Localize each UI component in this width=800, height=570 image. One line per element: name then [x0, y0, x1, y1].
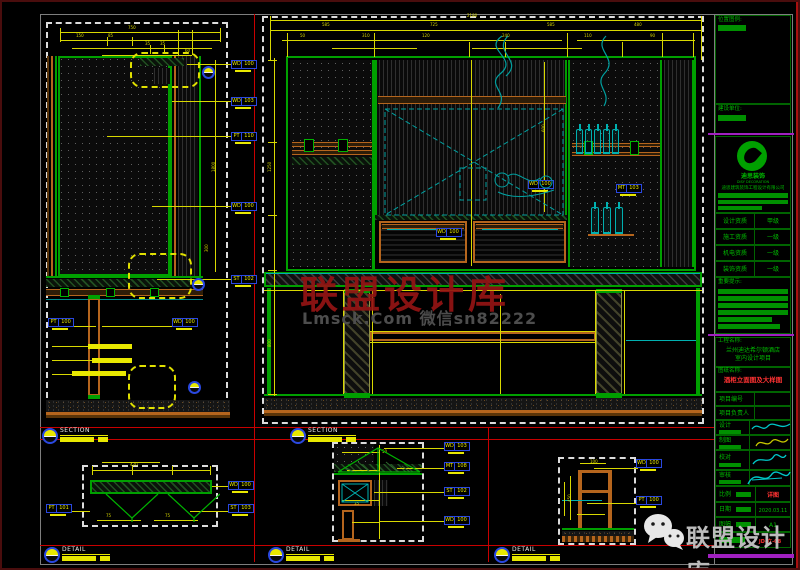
project-name-line1: 兰州迪达希尔顿酒店: [715, 347, 791, 354]
hatched-post: [596, 292, 622, 394]
material-tag-number: 101: [57, 505, 71, 512]
notice-bar: [718, 324, 780, 329]
watermark-center-url: Lmsck.Com 微信sn82222: [302, 305, 537, 329]
material-tag: WD100: [636, 459, 662, 468]
material-tag-number: 100: [455, 517, 469, 524]
dimension-line: [274, 58, 275, 396]
company-name: 迪思建筑装饰工程设计有限公司: [715, 186, 791, 191]
dimension-line: [107, 37, 108, 46]
notice-bar: [718, 289, 788, 294]
drawing-name-label: 图纸名称:: [718, 368, 742, 374]
wood-line: [51, 56, 53, 276]
dimension-line: [268, 142, 277, 143]
material-tag: WD100: [231, 202, 257, 211]
dimension-line: [52, 346, 88, 347]
dimension-line: [268, 270, 277, 271]
wood-line: [578, 490, 612, 493]
detail-bubble-icon: [202, 66, 215, 79]
dimension-text: 1250: [268, 162, 272, 172]
scale-bar: [736, 492, 751, 497]
title-bar: [100, 556, 110, 561]
material-tag-code: ST: [445, 488, 455, 495]
material-tag-number: 100: [647, 497, 661, 504]
cyan-line: [626, 340, 696, 341]
approve-bar: [719, 480, 741, 484]
purple-divider: [708, 334, 794, 336]
title-underline: [60, 435, 108, 436]
dimension-text: 2180: [467, 14, 477, 18]
view-title-marker: SECTION: [290, 428, 380, 443]
dimension-line: [132, 37, 133, 46]
note-bar: [72, 371, 126, 376]
dimension-text: 35: [145, 42, 150, 46]
green-line: [199, 56, 201, 276]
date-row: 日期 2020.03.11: [715, 502, 791, 517]
dimension-line: [268, 215, 277, 216]
material-tag: WD100: [436, 228, 462, 237]
material-tag-number: 102: [242, 276, 256, 283]
notice-bar: [718, 310, 788, 315]
dimension-line: [270, 30, 702, 31]
client-label: 建设单位:: [718, 106, 742, 112]
qual-value: 一级: [755, 250, 791, 257]
dimension-line: [92, 470, 210, 471]
dimension-line: [70, 511, 90, 512]
notice-bar: [718, 303, 788, 308]
qual-label: 设计资质: [716, 218, 754, 225]
wechat-icon: [642, 512, 686, 552]
green-line: [562, 528, 634, 530]
dimension-line: [172, 466, 173, 475]
truss-linework: [332, 444, 424, 476]
material-tag: PT101: [46, 504, 72, 513]
hatched-panel: [178, 56, 198, 276]
title-bar: [324, 556, 334, 561]
green-line: [88, 295, 100, 299]
material-tag-code: MT: [445, 463, 455, 470]
dimension-text: 585: [547, 23, 555, 27]
cad-sheet-screenshot: 7501508535356018003002180585725585480503…: [0, 0, 800, 570]
wine-bottle-icon: [603, 129, 610, 154]
material-tag-number: 100: [242, 61, 256, 68]
material-tag-code: PT: [49, 319, 59, 326]
dimension-line: [60, 40, 220, 41]
wood-frame: [578, 470, 582, 528]
material-tag-number: 100: [239, 482, 253, 489]
draft-label: 制图: [719, 438, 731, 444]
dimension-text: 35: [160, 42, 165, 46]
project-manager-label: 项目负责人: [719, 411, 749, 417]
project-name-line2: 室内设计项目: [715, 355, 791, 362]
green-line: [568, 60, 570, 267]
dimension-line: [374, 492, 445, 493]
client-bar: [718, 115, 746, 121]
dimension-line: [379, 521, 445, 522]
ribbon-ornament-icon: [470, 32, 532, 112]
brace-linework: [88, 492, 220, 522]
handle-block: [304, 139, 314, 152]
logo-leaf-icon: [741, 145, 762, 166]
dimension-line: [52, 374, 72, 375]
wood-frame: [370, 332, 596, 341]
logo-name-cn: 迪思装饰: [715, 173, 791, 180]
dimension-line: [268, 60, 277, 61]
dimension-text: 480: [634, 23, 642, 27]
title-bar: [98, 437, 108, 442]
handle-block: [60, 288, 69, 297]
dimension-line: [132, 466, 133, 475]
dimension-line: [352, 522, 380, 523]
dimension-line: [564, 482, 565, 516]
wine-bottle-icon: [615, 207, 623, 234]
dimension-line: [693, 33, 694, 57]
green-line: [55, 56, 57, 276]
material-tag-code: ST: [232, 276, 242, 283]
dimension-text: 725: [430, 23, 438, 27]
detail-bubble-icon: [192, 278, 205, 291]
dimension-line: [587, 503, 637, 504]
address-bar: [718, 200, 788, 204]
handle-block: [630, 141, 639, 155]
dimension-line: [701, 16, 702, 60]
wine-bottle-icon: [594, 129, 601, 154]
dimension-line: [72, 48, 212, 49]
callout-box: [128, 253, 192, 299]
material-tag: PT100: [48, 318, 74, 327]
dimension-line: [567, 33, 568, 57]
logo-name-en: DISY DECORATION: [715, 180, 791, 184]
green-line: [264, 394, 702, 396]
dimension-text: 150: [76, 34, 84, 38]
qualification-row: 装饰资质 一级: [715, 261, 791, 277]
wine-bottle-icon: [612, 129, 619, 154]
project-manager-row: 项目负责人: [715, 406, 791, 420]
wood-line: [588, 234, 634, 236]
cyan-line: [482, 229, 558, 230]
material-tag-number: 100: [447, 229, 461, 236]
material-tag-number: 103: [242, 98, 256, 105]
material-tag-number: 100: [183, 319, 197, 326]
hatched-panel: [664, 60, 692, 267]
design-bar: [719, 430, 741, 434]
teal-line: [46, 299, 203, 300]
view-title-label: DETAIL: [286, 547, 310, 553]
qual-label: 机电资质: [716, 250, 754, 257]
title-underline: [308, 435, 356, 436]
view-title-label: DETAIL: [62, 547, 86, 553]
wine-bottle-icon: [603, 207, 611, 234]
company-logo: [737, 141, 767, 171]
dimension-line: [287, 33, 288, 57]
scale-row: 比例 详图: [715, 486, 791, 502]
dimension-line: [107, 136, 231, 137]
notice-bar: [718, 317, 772, 322]
wood-grain-band: [562, 536, 634, 542]
location-bar: [718, 25, 746, 31]
material-tag-number: 108: [455, 463, 469, 470]
project-label: 工程名称:: [718, 338, 742, 344]
scale-value: 详图: [756, 492, 790, 499]
material-tag: ST102: [231, 275, 257, 284]
green-frame: [696, 288, 700, 394]
view-title-label: SECTION: [60, 428, 90, 434]
location-label: 位置图例:: [718, 17, 742, 23]
material-tag-number: 103: [455, 443, 469, 450]
callout-box: [130, 52, 200, 88]
dimension-line: [152, 206, 231, 207]
wood-line: [578, 470, 612, 473]
view-title-label: DETAIL: [512, 547, 536, 553]
green-line: [375, 60, 377, 217]
material-tag-code: WD: [445, 443, 455, 450]
dimension-line: [192, 30, 193, 55]
material-tag-number: 100: [242, 203, 256, 210]
hatched-panel: [374, 480, 388, 506]
qual-label: 施工资质: [716, 234, 754, 241]
handle-block: [106, 288, 115, 297]
purple-divider: [708, 133, 794, 135]
watermark-corner-text: 联盟设计库: [686, 518, 798, 570]
check-bar: [719, 463, 741, 467]
material-tag: WD103: [231, 97, 257, 106]
qualification-row: 机电资质 一级: [715, 245, 791, 261]
material-tag: PT100: [636, 496, 662, 505]
notice-label: 重要提示:: [718, 279, 742, 285]
material-tag-code: WD: [232, 61, 242, 68]
green-line: [88, 395, 100, 399]
material-tag-code: WD: [437, 229, 447, 236]
design-label: 设计: [719, 423, 731, 429]
green-line: [170, 56, 172, 276]
dimension-line: [577, 514, 605, 515]
qual-value: 一级: [755, 266, 791, 273]
address-bar: [718, 193, 788, 198]
material-tag-number: 103: [239, 505, 253, 512]
floor-hatch: [264, 398, 702, 410]
dimension-line: [624, 291, 625, 394]
title-bar: [60, 437, 94, 442]
material-tag-number: 110: [242, 133, 256, 140]
material-tag: MT108: [444, 462, 470, 471]
title-bar: [550, 556, 560, 561]
dimension-line: [74, 326, 96, 327]
material-tag-number: 100: [647, 460, 661, 467]
date-bar: [736, 507, 751, 512]
detail-bubble-icon: [42, 428, 58, 444]
material-tag-code: WD: [232, 203, 242, 210]
approve-label: 审核: [719, 473, 731, 479]
title-underline: [286, 554, 334, 555]
dimension-text: 300: [205, 244, 209, 252]
callout-box: [128, 365, 176, 409]
material-tag-code: PT: [232, 133, 242, 140]
dimension-line: [662, 33, 663, 57]
wine-bottle-icon: [591, 207, 599, 234]
qual-value: 一级: [755, 234, 791, 241]
title-bar: [62, 556, 96, 561]
wine-bottle-icon: [585, 129, 592, 154]
dimension-line: [594, 468, 638, 469]
decor-ornament-icon: [488, 162, 568, 202]
detail-bubble-icon: [290, 428, 306, 444]
qual-label: 装饰资质: [716, 266, 754, 273]
material-tag: WD100: [228, 481, 254, 490]
wood-line: [338, 539, 360, 542]
signature-draft: [752, 434, 790, 451]
material-tag-code: PT: [637, 497, 647, 504]
title-bar: [346, 437, 356, 442]
dimension-line: [210, 466, 211, 475]
material-tag-code: WD: [637, 460, 647, 467]
dimension-text: 90: [650, 34, 655, 38]
dimension-text: 1800: [212, 162, 216, 172]
material-tag: WD100: [444, 516, 470, 525]
title-bar: [512, 556, 546, 561]
title-underline: [512, 554, 560, 555]
dimension-text: 585: [322, 23, 330, 27]
detail-bubble-icon: [188, 381, 201, 394]
material-tag: WD100: [231, 60, 257, 69]
dimension-line: [374, 33, 375, 57]
dimension-line: [220, 28, 221, 42]
material-tag-code: WD: [232, 98, 242, 105]
dimension-text: 120: [422, 34, 430, 38]
material-tag-number: 103: [627, 185, 641, 192]
material-tag-code: WD: [229, 482, 239, 489]
material-tag-code: WD: [173, 319, 183, 326]
check-label: 校对: [719, 455, 731, 461]
detail-bubble-icon: [268, 547, 284, 563]
wood-line: [47, 56, 49, 276]
view-title-marker: DETAIL: [268, 547, 358, 562]
cell-divider: [754, 393, 755, 405]
wood-line: [264, 413, 702, 416]
address-bar: [718, 206, 762, 210]
view-title-marker: DETAIL: [494, 547, 584, 562]
dimension-line: [270, 20, 702, 21]
date-value: 2020.03.11: [756, 508, 790, 515]
draft-bar: [719, 445, 741, 449]
wine-bottle-icon: [576, 129, 583, 154]
dimension-line: [270, 16, 271, 60]
material-tag: PT110: [231, 132, 257, 141]
dimension-line: [102, 326, 172, 327]
view-title-marker: SECTION: [42, 428, 132, 443]
title-bar: [286, 556, 320, 561]
material-tag: MT103: [616, 184, 642, 193]
qualification-row: 施工资质 一级: [715, 229, 791, 245]
dimension-line: [370, 331, 596, 332]
drawing-name-value: 酒柜立面图及大样图: [715, 377, 791, 384]
title-underline: [62, 554, 110, 555]
note-bar: [88, 344, 132, 349]
view-title-label: SECTION: [308, 428, 338, 434]
dimension-text: 450: [568, 494, 572, 502]
wood-frame: [342, 510, 354, 540]
dimension-line: [370, 342, 596, 343]
hatched-band: [292, 157, 372, 165]
cell-divider: [754, 407, 755, 419]
detail-bubble-icon: [494, 547, 510, 563]
cell-divider: [749, 436, 750, 449]
wood-frame: [608, 470, 612, 528]
qual-value: 甲级: [755, 218, 791, 225]
project-no-row: 项目编号: [715, 392, 791, 406]
title-bar: [308, 437, 342, 442]
material-tag: ST102: [444, 487, 470, 496]
dimension-line: [60, 32, 220, 33]
dimension-line: [60, 28, 61, 42]
material-tag-number: 102: [455, 488, 469, 495]
dimension-text: 420: [130, 463, 138, 467]
material-tag-code: ST: [229, 505, 239, 512]
date-label: 日期: [719, 507, 731, 513]
qualification-row: 设计资质 甲级: [715, 213, 791, 229]
material-tag-code: WD: [445, 517, 455, 524]
material-tag-code: PT: [47, 505, 57, 512]
wood-line: [46, 415, 230, 418]
notice-bar: [718, 296, 788, 301]
dimension-text: 50: [300, 34, 305, 38]
dimension-text: 750: [128, 26, 136, 30]
handle-block: [338, 139, 348, 152]
note-bar: [92, 358, 132, 363]
dimension-line: [92, 466, 93, 475]
material-tag: ST103: [228, 504, 254, 513]
project-no-label: 项目编号: [719, 397, 743, 403]
scale-label: 比例: [719, 492, 731, 498]
green-frame: [58, 56, 170, 276]
dimension-line: [172, 101, 231, 102]
blocking-x-symbol: [341, 483, 369, 503]
dimension-line: [52, 360, 92, 361]
ribbon-ornament-icon: [582, 32, 628, 112]
dimension-line: [268, 394, 277, 395]
view-title-marker: DETAIL: [44, 547, 134, 562]
wood-line: [174, 56, 176, 276]
material-tag-number: 100: [59, 319, 73, 326]
dimension-text: 310: [362, 34, 370, 38]
detail-bubble-icon: [44, 547, 60, 563]
dimension-text: 85: [108, 34, 113, 38]
material-tag: WD103: [444, 442, 470, 451]
dimension-text: 100: [590, 460, 598, 464]
green-line: [692, 60, 694, 267]
material-tag: WD100: [172, 318, 198, 327]
material-tag-code: MT: [617, 185, 627, 192]
dimension-text: 800: [268, 339, 272, 347]
green-line: [660, 60, 662, 267]
